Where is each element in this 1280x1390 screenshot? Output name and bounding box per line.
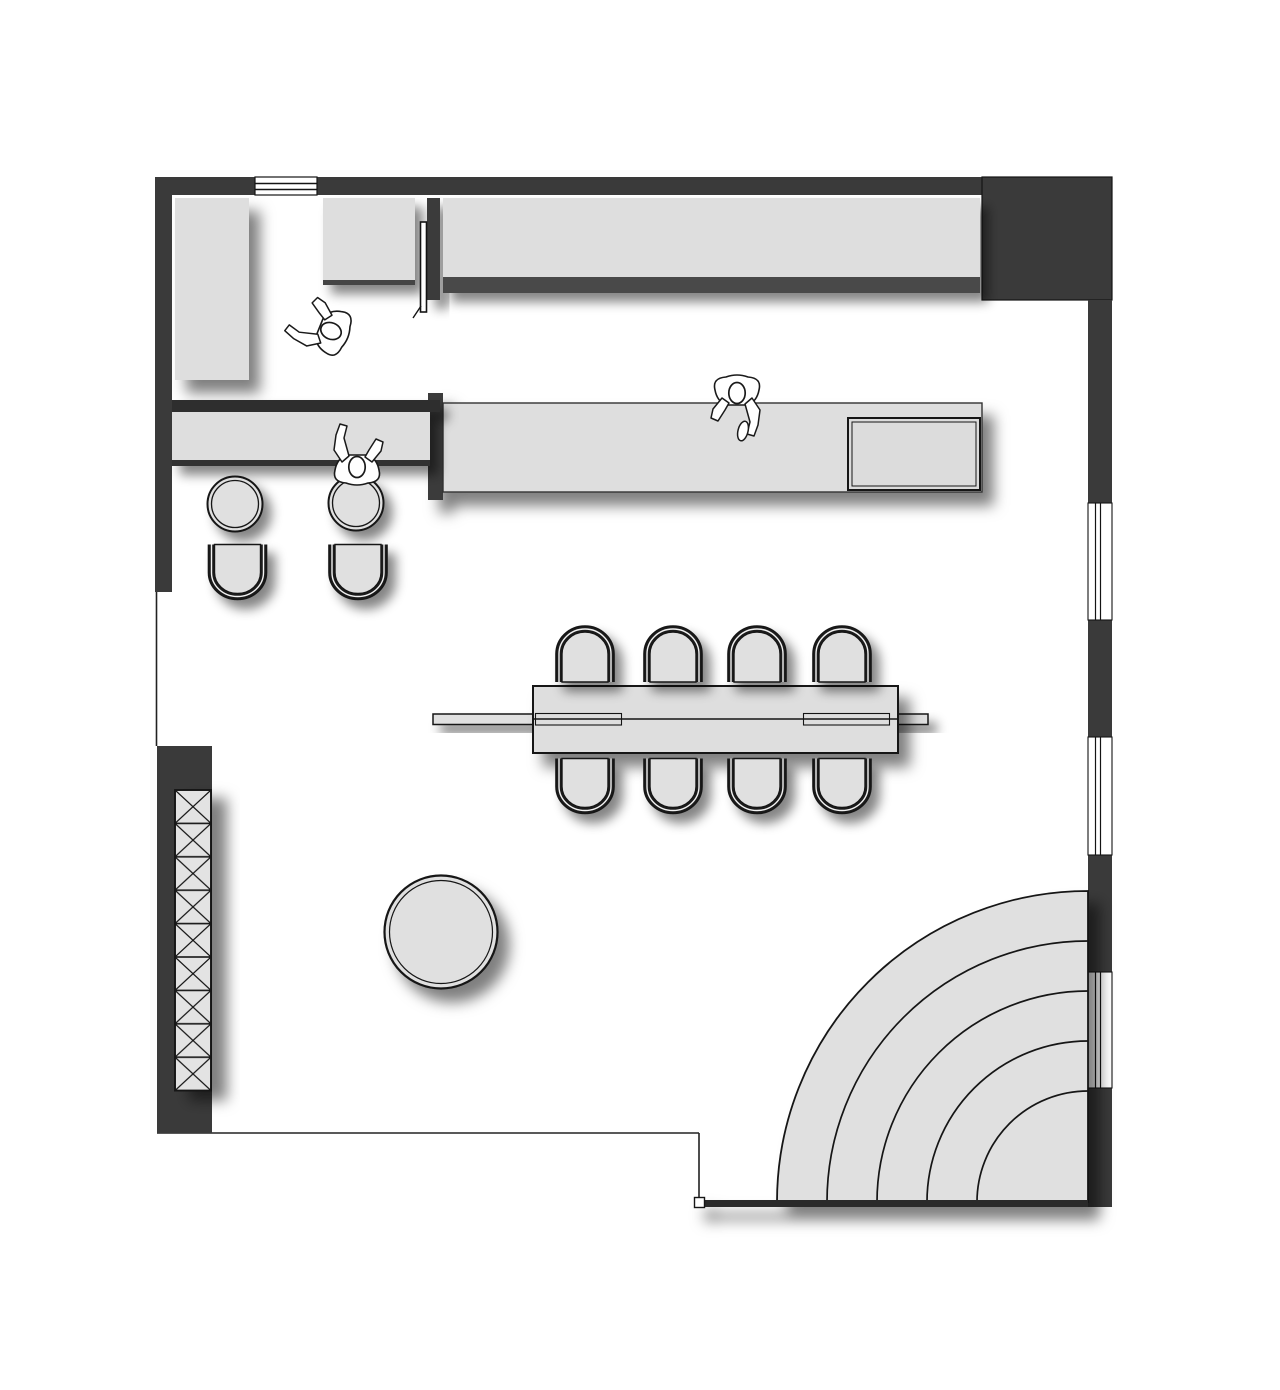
upper-cabinet — [323, 198, 415, 285]
left-wall — [155, 177, 172, 592]
lounge-chair-2 — [329, 545, 387, 600]
dining-chair — [556, 626, 614, 682]
dining-chair — [728, 759, 786, 814]
window-2 — [1088, 737, 1112, 855]
floor-plan-drawing — [0, 0, 1280, 1390]
right-wall-windows — [1088, 503, 1112, 1088]
dining-chair — [556, 759, 614, 814]
bar-stool-1 — [208, 477, 263, 532]
door-post — [427, 198, 440, 300]
door-leaf — [421, 222, 427, 312]
base-node — [695, 1198, 705, 1208]
door-assembly — [413, 198, 440, 318]
person-reaching — [283, 291, 358, 359]
hatched-shelf — [175, 790, 211, 1091]
tier-base-edge — [702, 1200, 1088, 1207]
tall-cabinet-top-left — [175, 198, 249, 380]
island-inset-appliance — [848, 418, 980, 490]
dining-chair — [644, 759, 702, 814]
window-3 — [1088, 972, 1112, 1088]
dining-chairs-bottom — [556, 759, 871, 814]
dining-chair — [813, 626, 871, 682]
top-right-wall-block — [982, 177, 1112, 300]
lounge-chair-1 — [209, 545, 267, 600]
window-1 — [1088, 503, 1112, 620]
left-bar-counter — [172, 400, 440, 466]
island-counter — [428, 393, 982, 500]
dining-chair — [728, 626, 786, 682]
top-vent-window — [255, 177, 317, 195]
round-table — [385, 876, 498, 989]
communal-table-group — [433, 686, 928, 753]
dining-chair — [644, 626, 702, 682]
upper-counter — [443, 198, 980, 293]
dining-chairs-top — [556, 626, 871, 682]
tier-step-5 — [777, 891, 1088, 1202]
dining-chair — [813, 759, 871, 814]
tiered-seating — [695, 891, 1089, 1208]
floor-plan-canvas — [0, 0, 1280, 1390]
